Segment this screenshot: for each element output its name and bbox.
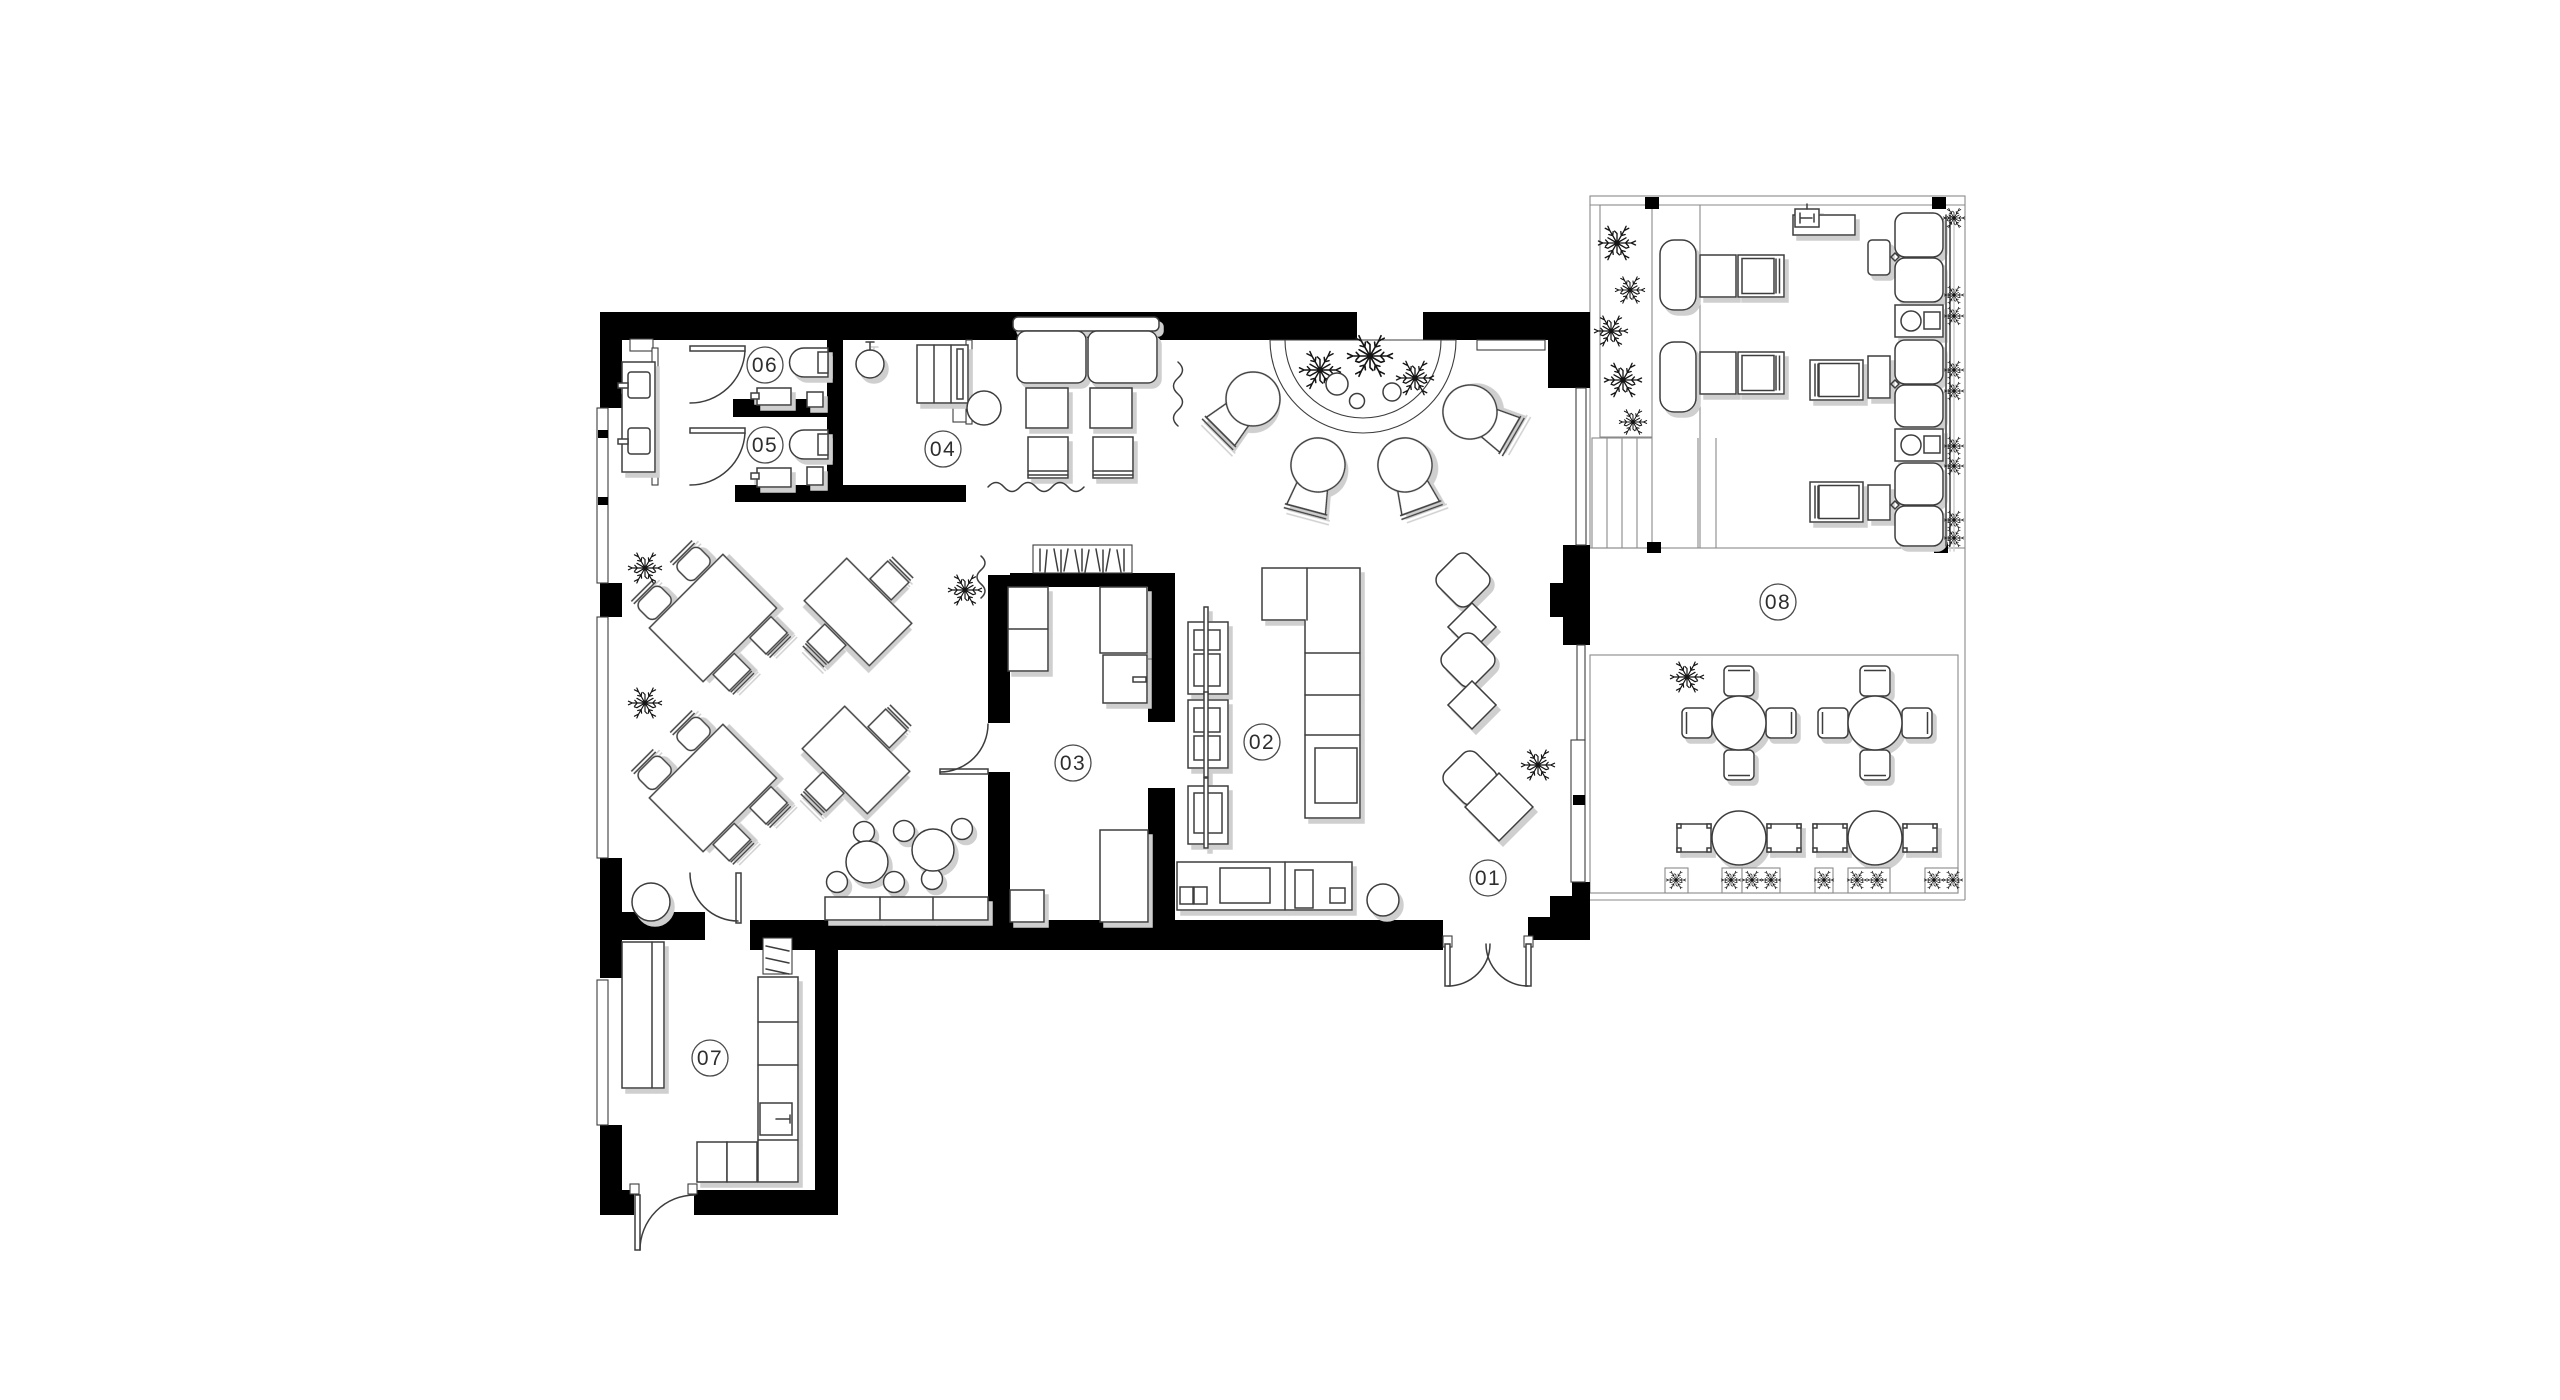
sofa-side-table — [1895, 429, 1943, 461]
coat-rack — [1033, 545, 1132, 573]
window — [1576, 388, 1586, 545]
cabinet — [727, 1142, 757, 1182]
patio-table-cross — [1682, 666, 1796, 780]
bush-icon — [1944, 437, 1964, 455]
bar-counter — [1262, 568, 1360, 818]
faucet — [751, 473, 759, 479]
shelf-column — [758, 977, 798, 1182]
bin — [807, 392, 823, 407]
bench-lounger — [1660, 342, 1696, 412]
lounge-chair — [1810, 482, 1863, 522]
counter — [1100, 830, 1148, 922]
deck-service-table — [1793, 204, 1855, 235]
floor-plan-svg: 01 02 03 04 05 06 07 08 — [0, 0, 2560, 1400]
dining-table-4top — [627, 702, 798, 873]
door-wc-06 — [690, 346, 745, 403]
room-label-06: 06 — [747, 347, 783, 383]
curtain — [1174, 362, 1183, 426]
window — [597, 617, 608, 858]
ladder-shelf — [763, 938, 792, 974]
faucet — [751, 393, 759, 399]
hall-planter — [1270, 336, 1456, 433]
plant-pot — [967, 391, 1001, 425]
planter-pot — [1383, 383, 1401, 401]
curtain — [988, 483, 1084, 492]
basin — [856, 350, 884, 378]
storage-04 — [856, 342, 968, 403]
bush-icon — [1944, 286, 1964, 304]
window-armchairs — [1432, 549, 1533, 841]
room-label-03-text: 03 — [1060, 752, 1086, 775]
room-label-04: 04 — [925, 431, 961, 467]
toilet — [790, 348, 829, 377]
room-label-08-text: 08 — [1765, 591, 1791, 614]
door-wc-05 — [690, 428, 745, 485]
back-counter — [1177, 862, 1352, 910]
faucet — [618, 383, 628, 388]
tree-icon — [1521, 750, 1554, 780]
deck-stairs — [1592, 438, 1716, 548]
room-labels: 01 02 03 04 05 06 07 08 — [692, 347, 1796, 1076]
toilet — [790, 430, 829, 459]
windows — [597, 339, 1586, 1125]
dining-table-4top — [627, 532, 798, 703]
room-label-05: 05 — [747, 427, 783, 463]
deck-post — [1932, 197, 1946, 209]
pedestal-table-set — [1279, 432, 1351, 520]
floor-plan-canvas: 01 02 03 04 05 06 07 08 — [0, 0, 2560, 1400]
side-table — [1868, 485, 1890, 520]
tall-cabinet — [622, 942, 664, 1088]
sink — [628, 372, 650, 398]
room-label-01: 01 — [1470, 860, 1506, 896]
bush-icon — [1944, 511, 1964, 529]
wall-bench — [825, 897, 988, 920]
sofa-side-table — [1895, 305, 1943, 337]
entrance-double-door — [1443, 936, 1533, 986]
back-exit-door — [630, 1184, 697, 1250]
dining-area — [627, 532, 988, 923]
room-label-05-text: 05 — [752, 434, 778, 457]
room-label-01-text: 01 — [1475, 867, 1501, 890]
lounge-poufs — [1026, 388, 1133, 478]
deck-post — [1645, 197, 1659, 209]
corridor-sink-counter — [618, 362, 655, 472]
patio — [1590, 655, 1965, 900]
room-label-03: 03 — [1055, 745, 1091, 781]
wc-sink — [757, 388, 791, 405]
tree-icon — [948, 575, 981, 605]
planter-pot — [1326, 373, 1348, 395]
tree-icon — [628, 688, 661, 718]
side-table — [1868, 356, 1890, 398]
window-sill — [1477, 340, 1545, 350]
deck-modular-sofa — [1891, 213, 1950, 546]
wall-nib — [953, 408, 966, 422]
sofa — [1013, 317, 1159, 383]
plant-pot — [1367, 884, 1399, 916]
stool — [1868, 240, 1890, 275]
room-label-02-text: 02 — [1249, 731, 1275, 754]
patio-table-bench — [1813, 811, 1937, 865]
patio-table-cross — [1818, 666, 1932, 780]
patio-planter-boxes — [1665, 868, 1963, 893]
tree-icon — [1670, 662, 1703, 692]
room-label-06-text: 06 — [752, 354, 778, 377]
room-label-04-text: 04 — [930, 438, 956, 461]
deck-loungers — [1660, 204, 1890, 522]
cabinet — [1010, 890, 1044, 922]
bush-icon — [1944, 307, 1964, 325]
window — [597, 980, 608, 1125]
cabinet — [697, 1142, 727, 1182]
round-table-stools — [827, 819, 973, 893]
deck-post — [1647, 542, 1661, 553]
room-label-07-text: 07 — [697, 1047, 723, 1070]
pedestal-table-set — [1433, 375, 1527, 460]
bin — [807, 467, 823, 485]
tree-icon — [628, 553, 661, 583]
bush-icon — [1944, 382, 1964, 400]
kitchen-sink-line — [1188, 607, 1228, 848]
door-room-03 — [940, 724, 988, 774]
wc-sink — [757, 468, 791, 487]
room-label-08: 08 — [1760, 584, 1796, 620]
room-label-07: 07 — [692, 1040, 728, 1076]
lounge-chair — [1810, 360, 1863, 400]
bush-icon — [1944, 361, 1964, 379]
pedestal-table-set — [1370, 430, 1447, 521]
dining-table-2top — [781, 535, 935, 689]
bush-icon — [1944, 457, 1964, 475]
patio-table-bench — [1677, 811, 1801, 865]
planter-pot — [1350, 394, 1365, 409]
terrace-deck — [1590, 196, 1965, 900]
window — [1577, 645, 1585, 740]
dining-table-2top — [779, 683, 933, 837]
bench-lounger — [1660, 240, 1696, 310]
cabinet — [1100, 587, 1147, 653]
wall-nib — [630, 339, 653, 351]
faucet — [618, 439, 628, 444]
window — [1571, 740, 1585, 882]
sink — [628, 428, 650, 454]
lounge-set — [1700, 352, 1784, 394]
plant-pot — [632, 883, 670, 921]
fridge-handle — [1133, 677, 1146, 682]
room-label-02: 02 — [1244, 724, 1280, 760]
lounge-set — [1700, 255, 1784, 297]
